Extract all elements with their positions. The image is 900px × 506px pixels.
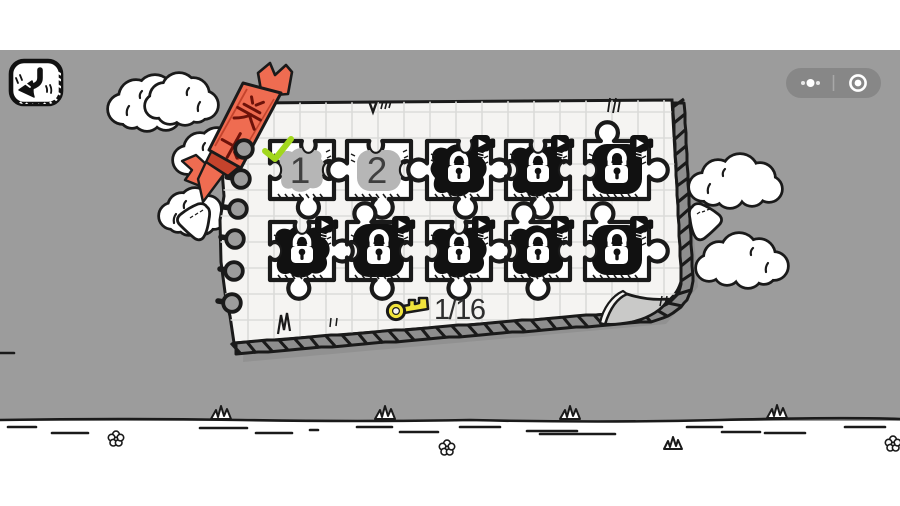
svg-text:1: 1 [290,150,311,191]
svg-text:2: 2 [367,150,388,191]
svg-text:1/16: 1/16 [434,294,485,326]
